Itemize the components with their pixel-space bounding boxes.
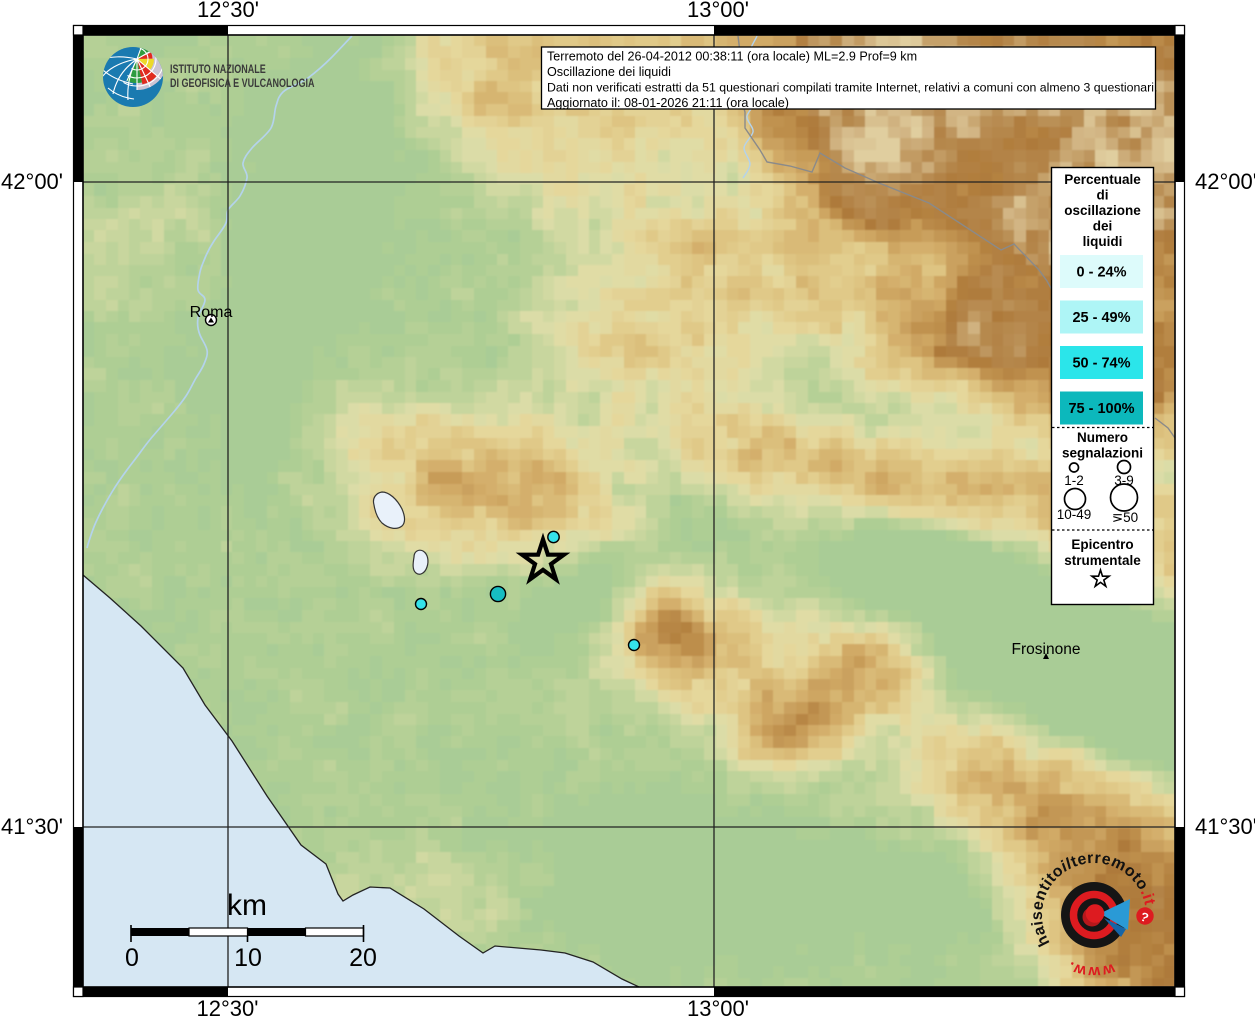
svg-text:dei: dei	[1093, 219, 1113, 234]
svg-text:13°00': 13°00'	[687, 0, 749, 22]
svg-text:13°00': 13°00'	[687, 996, 749, 1021]
svg-text:DI GEOFISICA E VULCANOLOGIA: DI GEOFISICA E VULCANOLOGIA	[170, 77, 315, 91]
svg-text:42°00': 42°00'	[1, 169, 63, 194]
svg-text:Terremoto del 26-04-2012 00:38: Terremoto del 26-04-2012 00:38:11 (ora l…	[547, 50, 917, 64]
svg-text:Epicentro: Epicentro	[1071, 537, 1133, 552]
svg-text:50 - 74%: 50 - 74%	[1072, 356, 1130, 372]
svg-text:41°30': 41°30'	[1, 814, 63, 839]
svg-text:10-49: 10-49	[1057, 507, 1092, 522]
svg-text:ISTITUTO NAZIONALE: ISTITUTO NAZIONALE	[170, 63, 266, 77]
svg-text:Frosinone: Frosinone	[1012, 641, 1081, 658]
svg-text:12°30': 12°30'	[197, 996, 259, 1021]
svg-text:segnalazioni: segnalazioni	[1062, 446, 1143, 461]
svg-text:Aggiornato il: 08-01-2026 21:1: Aggiornato il: 08-01-2026 21:11 (ora loc…	[547, 96, 789, 110]
svg-text:0 - 24%: 0 - 24%	[1077, 265, 1127, 281]
svg-text:25 - 49%: 25 - 49%	[1072, 310, 1130, 326]
svg-text:oscillazione: oscillazione	[1064, 203, 1141, 218]
svg-text:Roma: Roma	[190, 304, 233, 321]
svg-text:liquidi: liquidi	[1083, 234, 1123, 249]
svg-text:42°00': 42°00'	[1195, 169, 1255, 194]
svg-text:75 - 100%: 75 - 100%	[1068, 401, 1134, 417]
svg-text:Dati non verificati estratti d: Dati non verificati estratti da 51 quest…	[547, 81, 1157, 95]
svg-text:km: km	[227, 889, 267, 922]
svg-text:41°30': 41°30'	[1195, 814, 1255, 839]
svg-text:di: di	[1097, 188, 1109, 203]
svg-text:12°30': 12°30'	[197, 0, 259, 22]
svg-text:1-2: 1-2	[1064, 473, 1084, 488]
svg-text:0: 0	[125, 944, 139, 972]
svg-text:Numero: Numero	[1077, 430, 1128, 445]
svg-text:Percentuale: Percentuale	[1064, 172, 1141, 187]
svg-text:⋝50: ⋝50	[1112, 510, 1138, 525]
svg-text:20: 20	[349, 944, 377, 972]
svg-text:Oscillazione dei liquidi: Oscillazione dei liquidi	[547, 65, 671, 79]
svg-text:10: 10	[234, 944, 262, 972]
svg-text:strumentale: strumentale	[1064, 553, 1141, 568]
